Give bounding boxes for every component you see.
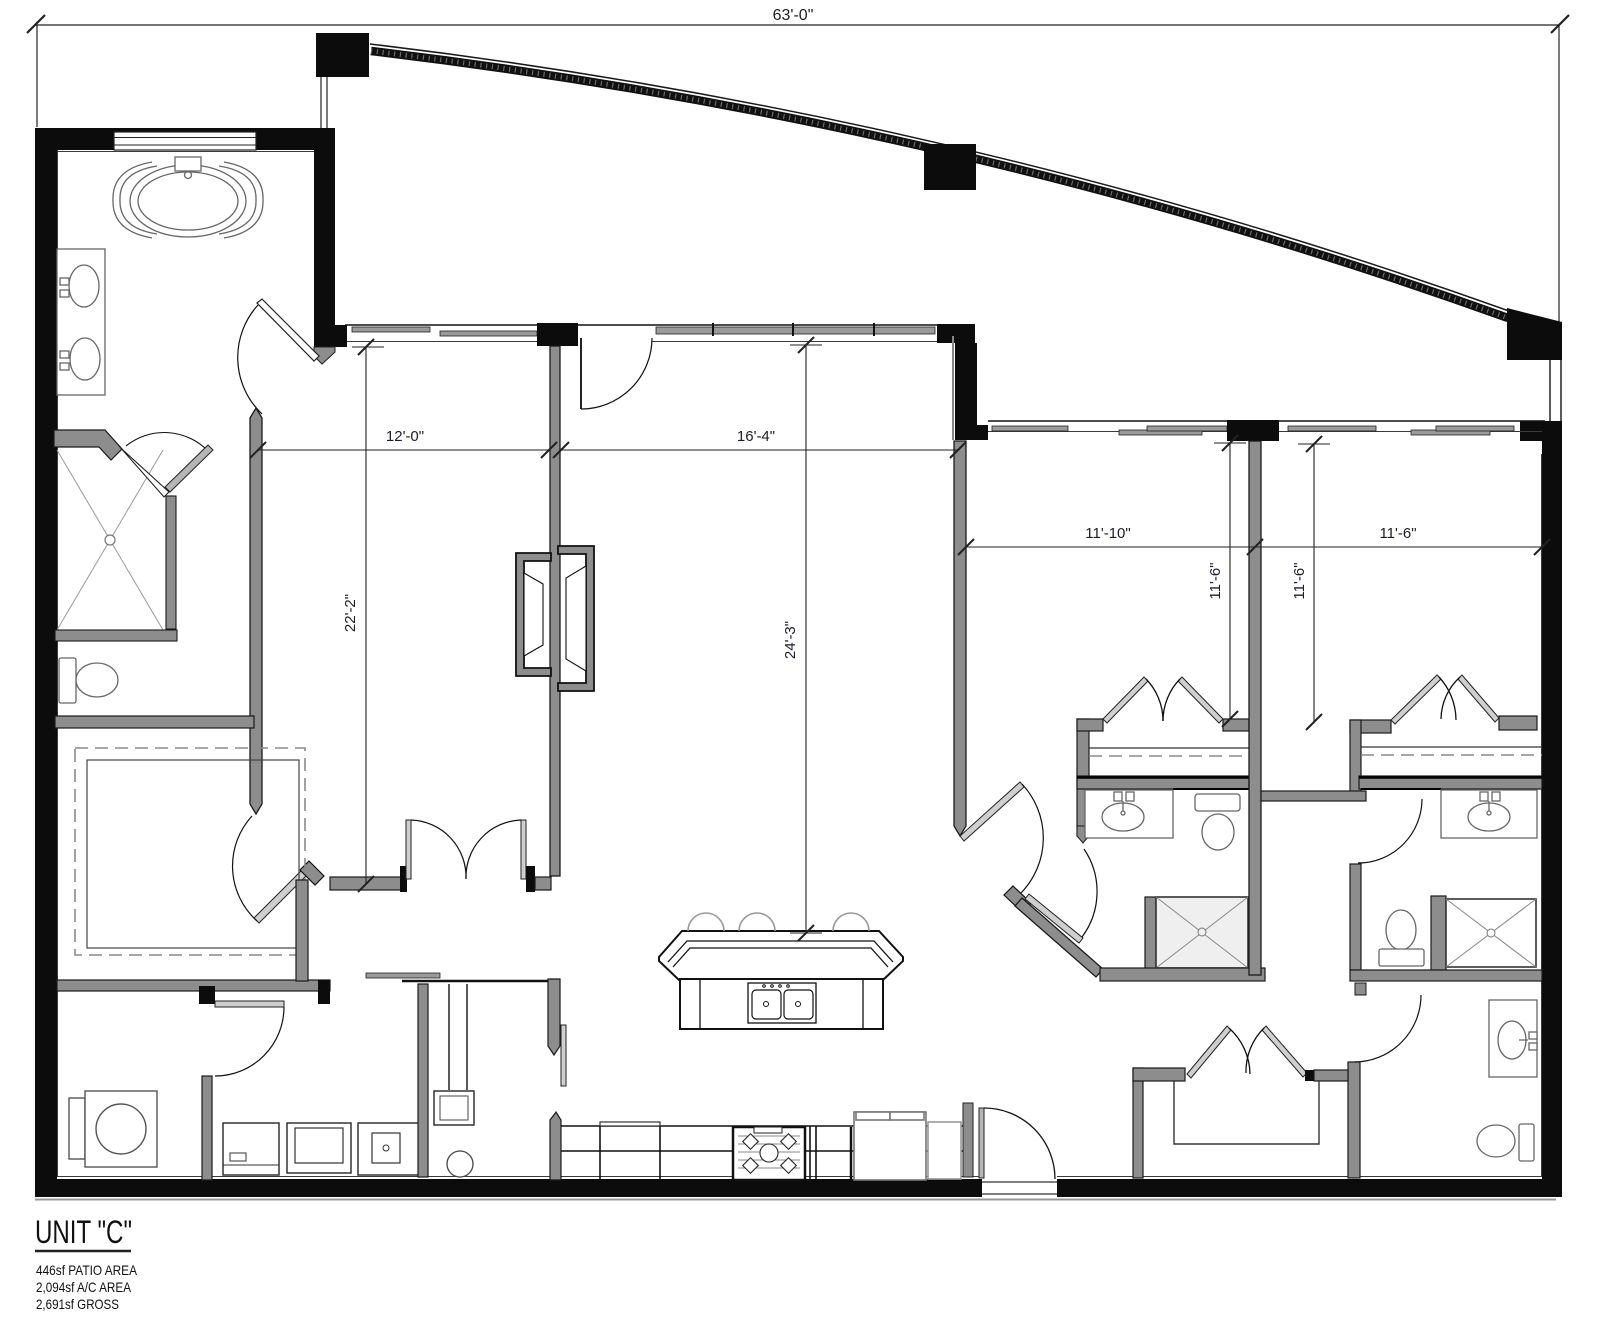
svg-text:11'-6": 11'-6" (1291, 562, 1308, 599)
svg-text:2,691sf GROSS: 2,691sf GROSS (36, 1296, 119, 1312)
svg-text:446sf PATIO AREA: 446sf PATIO AREA (36, 1262, 138, 1278)
svg-text:11'-10": 11'-10" (1085, 525, 1130, 542)
svg-text:22'-2": 22'-2" (342, 594, 359, 632)
svg-text:UNIT "C": UNIT "C" (35, 1214, 132, 1250)
svg-text:16'-4": 16'-4" (737, 428, 775, 445)
svg-text:63'-0": 63'-0" (773, 7, 814, 24)
svg-text:12'-0": 12'-0" (386, 428, 424, 445)
svg-text:11'-6": 11'-6" (1379, 525, 1416, 542)
svg-text:11'-6": 11'-6" (1207, 562, 1224, 599)
svg-text:2,094sf A/C AREA: 2,094sf A/C AREA (36, 1279, 132, 1295)
svg-text:24'-3": 24'-3" (782, 621, 799, 659)
